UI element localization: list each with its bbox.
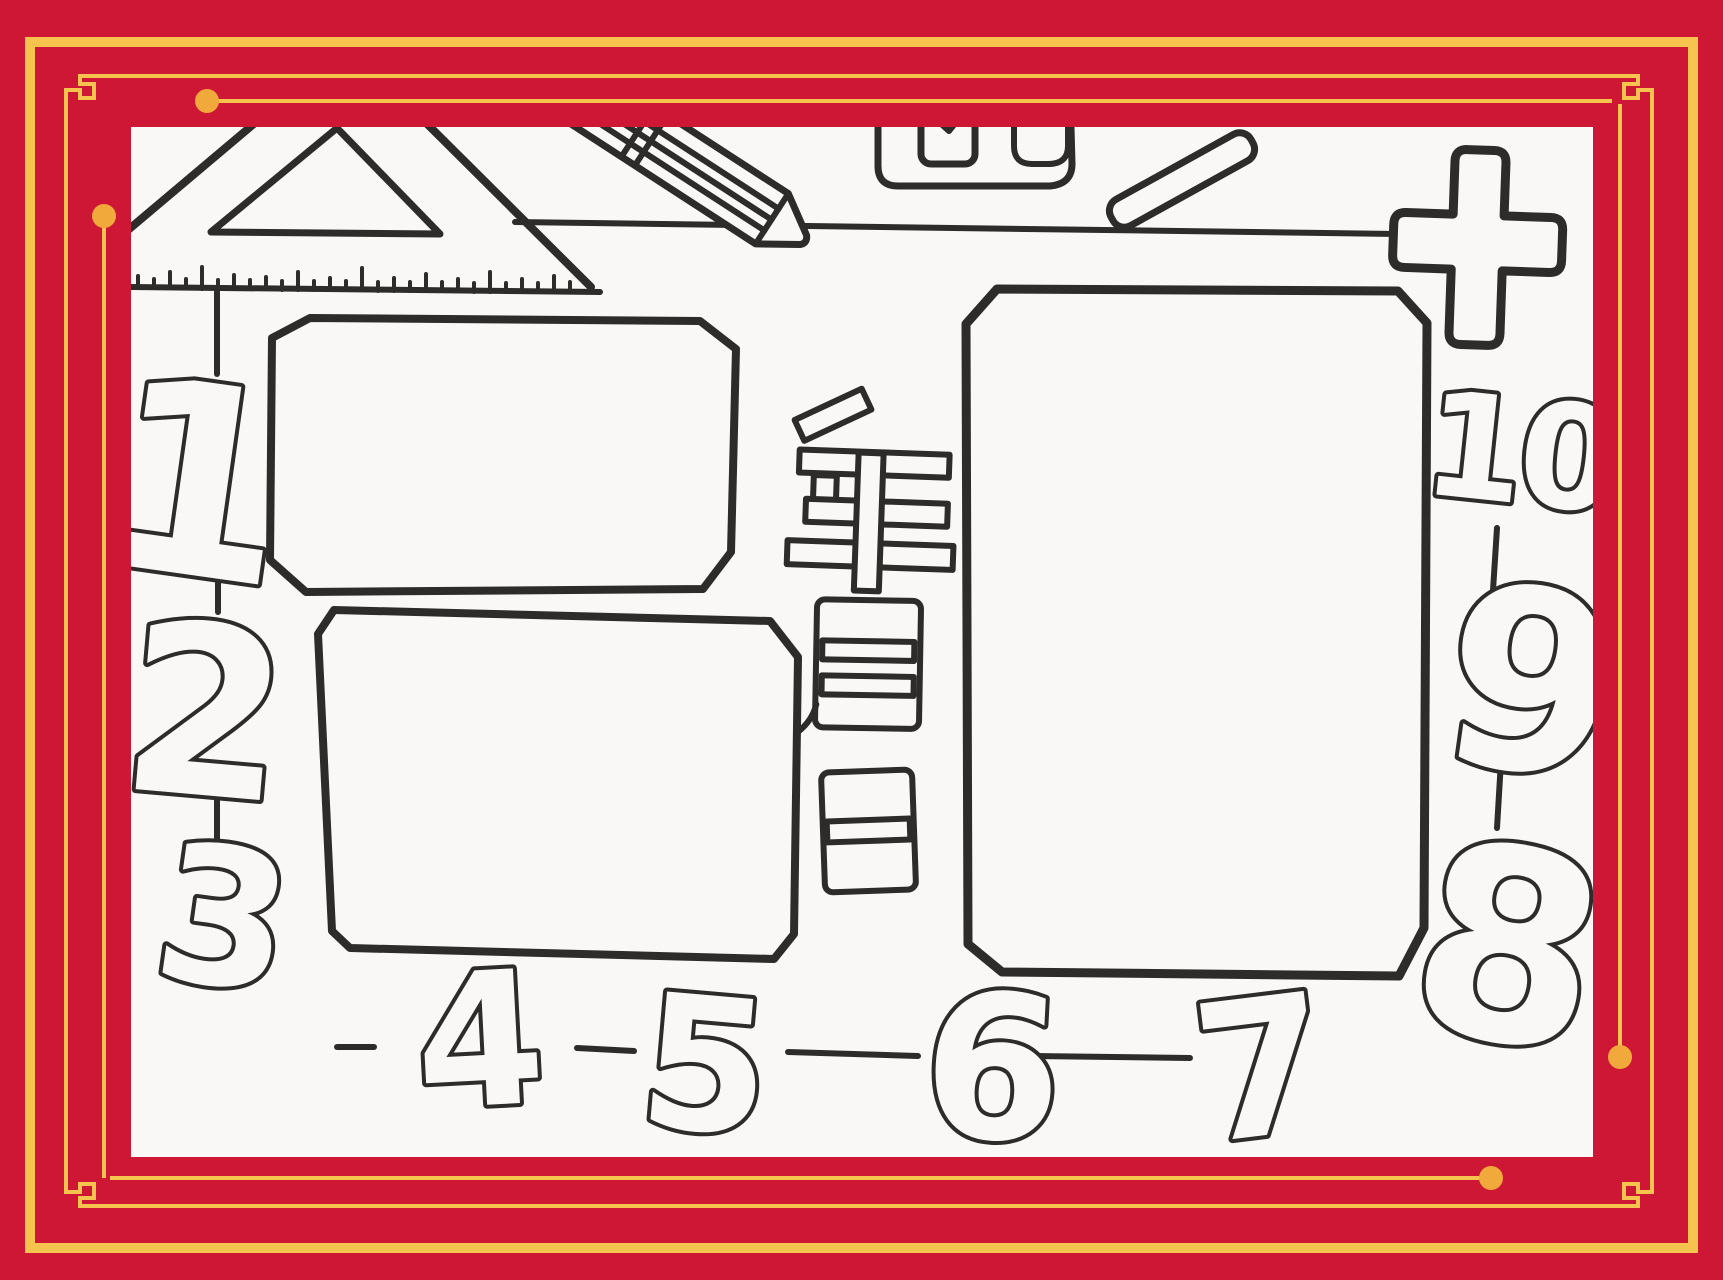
number-5: 5: [632, 953, 779, 1179]
accent-dot-bottom: [1479, 1166, 1503, 1190]
content-box-main: [966, 289, 1427, 976]
hanzi-day: [821, 769, 916, 892]
number-6: 6: [917, 950, 1068, 1190]
number-10: 10: [1416, 359, 1622, 547]
accent-dot-top: [195, 89, 219, 113]
accent-dot-left: [92, 204, 116, 228]
hanzi-month: [798, 599, 921, 734]
corner-motif-bottom-right: [1612, 1166, 1652, 1206]
number-7: 7: [1183, 952, 1341, 1187]
content-box-1: [270, 318, 736, 592]
corner-motif-top-left: [66, 76, 106, 116]
content-box-2: [318, 610, 798, 959]
sharpener-icon: [878, 90, 1072, 186]
poster-frame: 1 2 3 4 5 6 7 8 9 10: [0, 0, 1723, 1280]
number-4: 4: [410, 930, 550, 1152]
corner-motif-bottom-left: [66, 1166, 106, 1206]
poster-art: 1 2 3 4 5 6 7 8 9 10: [0, 0, 1723, 1280]
accent-dot-right: [1608, 1045, 1632, 1069]
